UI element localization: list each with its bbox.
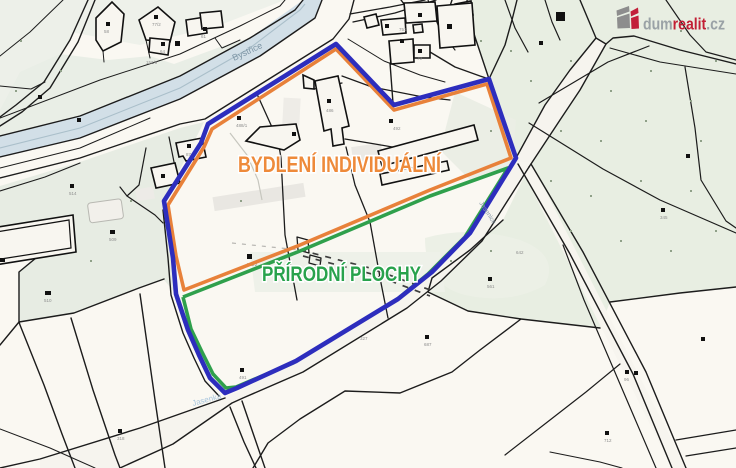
svg-text:58: 58 bbox=[104, 29, 110, 34]
svg-text:dumrealit.cz: dumrealit.cz bbox=[643, 16, 725, 34]
svg-text:510: 510 bbox=[44, 298, 52, 303]
svg-text:79: 79 bbox=[417, 56, 423, 61]
svg-text:491: 491 bbox=[239, 375, 247, 380]
svg-text:687: 687 bbox=[424, 342, 432, 347]
svg-text:152/9: 152/9 bbox=[146, 60, 158, 65]
svg-text:318: 318 bbox=[117, 436, 125, 441]
svg-text:77/2: 77/2 bbox=[152, 22, 161, 27]
svg-text:64: 64 bbox=[160, 49, 166, 54]
svg-text:PŘÍRODNÍ PLOCHY: PŘÍRODNÍ PLOCHY bbox=[262, 262, 421, 286]
svg-text:514: 514 bbox=[69, 191, 77, 196]
svg-text:712: 712 bbox=[604, 438, 612, 443]
svg-text:486: 486 bbox=[326, 108, 334, 113]
svg-text:642: 642 bbox=[516, 250, 524, 255]
svg-text:61: 61 bbox=[201, 34, 207, 39]
svg-text:488/1: 488/1 bbox=[236, 123, 248, 128]
svg-text:96: 96 bbox=[624, 377, 630, 382]
svg-text:327: 327 bbox=[360, 336, 368, 341]
svg-text:509: 509 bbox=[109, 237, 117, 242]
svg-text:345: 345 bbox=[660, 215, 668, 220]
svg-text:751: 751 bbox=[399, 27, 407, 32]
svg-text:561: 561 bbox=[487, 284, 495, 289]
svg-text:492: 492 bbox=[393, 126, 401, 131]
svg-text:BYDLENÍ INDIVIDUÁLNÍ: BYDLENÍ INDIVIDUÁLNÍ bbox=[238, 152, 442, 177]
